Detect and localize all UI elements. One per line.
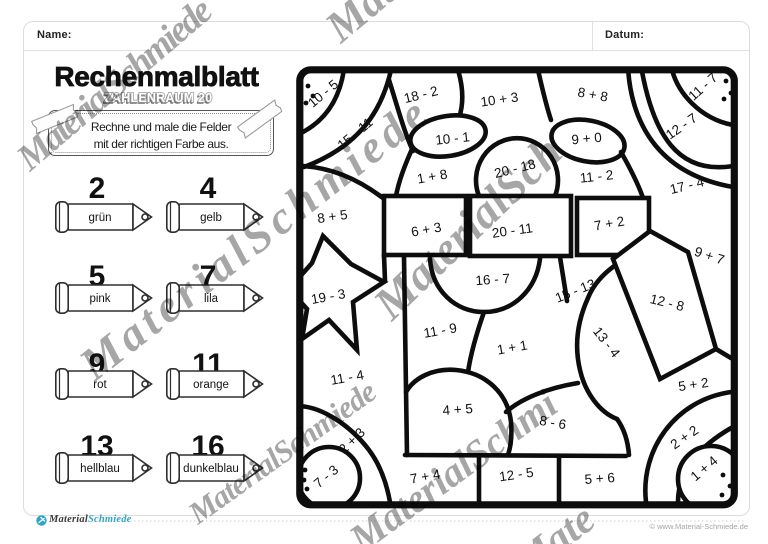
svg-text:Mate: Mate xyxy=(505,496,604,544)
svg-text:MaterialSch: MaterialSch xyxy=(363,126,572,330)
svg-text:MaterialSchmiede: MaterialSchmiede xyxy=(69,88,436,390)
svg-text:Mat: Mat xyxy=(315,0,405,52)
svg-text:MaterialSchmiede: MaterialSchmiede xyxy=(181,373,383,531)
svg-text:MaterialSchmiede: MaterialSchmiede xyxy=(8,0,220,179)
